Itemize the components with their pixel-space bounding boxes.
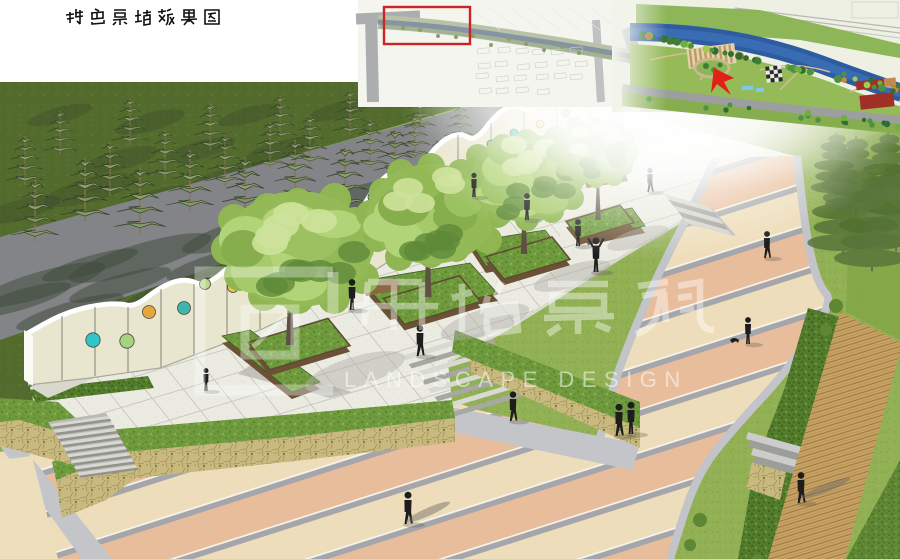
svg-text:LANDSCAPE DESIGN: LANDSCAPE DESIGN [344, 367, 688, 392]
